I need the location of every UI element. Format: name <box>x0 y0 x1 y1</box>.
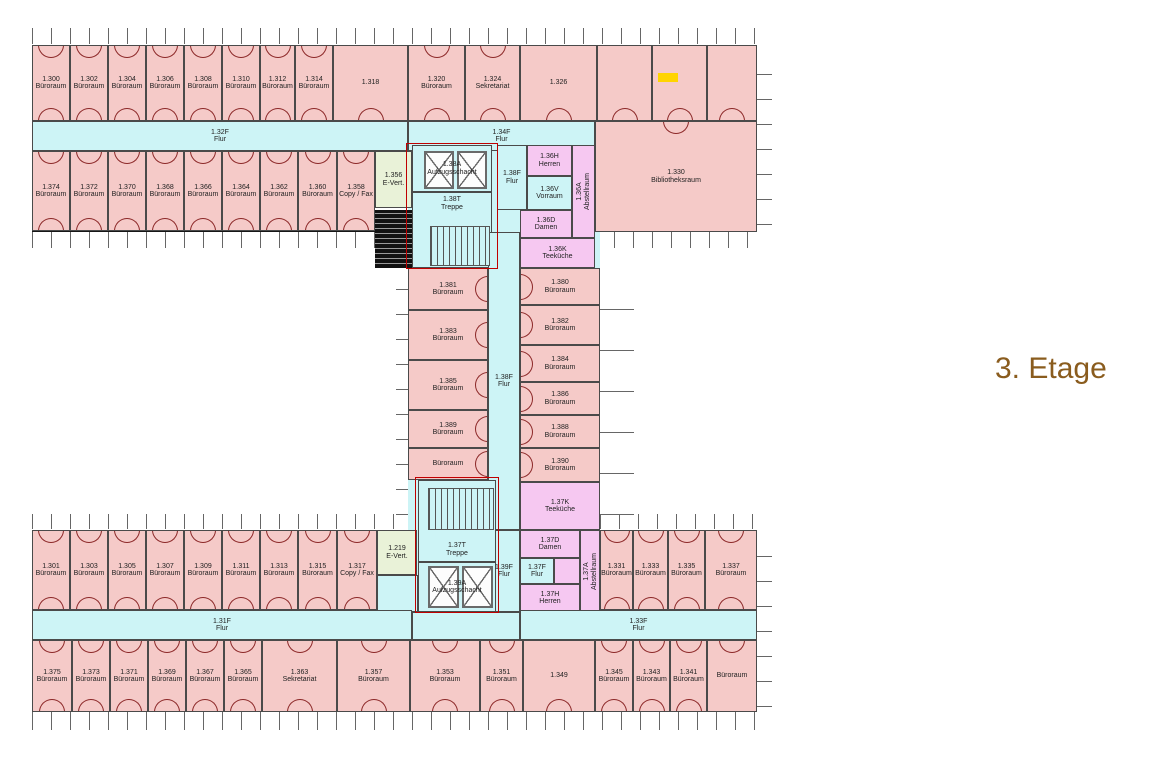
room-1.370: 1.370Büroraum <box>108 151 146 231</box>
room-1.37H: 1.37HHerren <box>520 584 580 612</box>
room-label: 1.389Büroraum <box>433 422 464 437</box>
door-swing-arc <box>114 530 140 543</box>
door-swing-arc <box>287 699 313 712</box>
room-1.330: 1.330Bibliotheksraum <box>595 121 757 232</box>
room-1.337: 1.337Büroraum <box>705 530 757 610</box>
room-label: 1.390Büroraum <box>545 458 576 473</box>
room-1.326: 1.326 <box>520 45 597 121</box>
room-label: Büroraum <box>717 672 748 680</box>
room-label: 1.358Copy / Fax <box>339 184 373 199</box>
door-swing-arc <box>480 108 506 121</box>
door-swing-arc <box>39 699 65 712</box>
room-1.349: 1.349 <box>523 640 595 712</box>
room-1.365: 1.365Büroraum <box>224 640 262 712</box>
room-label: 1.320Büroraum <box>421 76 452 91</box>
door-swing-arc <box>612 108 638 121</box>
room <box>554 558 580 584</box>
door-swing-arc <box>520 312 533 338</box>
room-label: 1.37FFlur <box>528 564 546 579</box>
room-1.357: 1.357Büroraum <box>337 640 410 712</box>
door-swing-arc <box>480 45 506 58</box>
room-label: 1.364Büroraum <box>226 184 257 199</box>
window-ticks <box>32 514 408 529</box>
room-1.331: 1.331Büroraum <box>600 530 633 610</box>
door-swing-arc <box>489 699 515 712</box>
room-1.388: 1.388Büroraum <box>520 415 600 448</box>
door-swing-arc <box>489 640 515 653</box>
room-label: 1.318 <box>362 79 380 87</box>
door-swing-arc <box>546 699 572 712</box>
room-label: 1.36KTeeküche <box>543 246 573 261</box>
room-1.366: 1.366Büroraum <box>184 151 222 231</box>
room-label: 1.345Büroraum <box>599 669 630 684</box>
room-label: 1.368Büroraum <box>150 184 181 199</box>
door-swing-arc <box>676 699 702 712</box>
door-swing-arc <box>190 108 216 121</box>
room-1.381: 1.381Büroraum <box>408 268 488 310</box>
room-label: 1.362Büroraum <box>264 184 295 199</box>
room <box>377 575 418 612</box>
door-swing-arc <box>190 218 216 231</box>
room-1.313: 1.313Büroraum <box>260 530 298 610</box>
room-label: 1.371Büroraum <box>114 669 145 684</box>
room-1.37F: 1.37FFlur <box>520 558 554 584</box>
door-swing-arc <box>719 640 745 653</box>
door-swing-arc <box>190 151 216 164</box>
room-label: Büroraum <box>433 460 464 468</box>
door-swing-arc <box>152 151 178 164</box>
room-label: 1.306Büroraum <box>150 76 181 91</box>
room-1.389: 1.389Büroraum <box>408 410 488 448</box>
room-1.368: 1.368Büroraum <box>146 151 184 231</box>
room-1.335: 1.335Büroraum <box>668 530 705 610</box>
room-label: 1.38FFlur <box>503 170 521 185</box>
room-label: 1.357Büroraum <box>358 669 389 684</box>
room-1.358: 1.358Copy / Fax <box>337 151 375 231</box>
room-label: 1.381Büroraum <box>433 282 464 297</box>
door-swing-arc <box>361 699 387 712</box>
room-label: 1.360Büroraum <box>302 184 333 199</box>
room-1.304: 1.304Büroraum <box>108 45 146 121</box>
window-ticks <box>32 232 408 248</box>
room-1.373: 1.373Büroraum <box>72 640 110 712</box>
room-label: 1.219E-Vert. <box>386 545 407 560</box>
door-swing-arc <box>676 640 702 653</box>
door-swing-arc <box>601 640 627 653</box>
room-label: 1.386Büroraum <box>545 391 576 406</box>
door-swing-arc <box>432 699 458 712</box>
door-swing-arc <box>116 699 142 712</box>
room-label: 1.375Büroraum <box>37 669 68 684</box>
door-swing-arc <box>38 108 64 121</box>
door-swing-arc <box>424 108 450 121</box>
door-swing-arc <box>520 419 533 445</box>
door-swing-arc <box>192 640 218 653</box>
room-label: 1.330Bibliotheksraum <box>651 169 701 184</box>
room-label: 1.383Büroraum <box>433 328 464 343</box>
door-swing-arc <box>152 218 178 231</box>
door-swing-arc <box>358 108 384 121</box>
room-label: 1.373Büroraum <box>76 669 107 684</box>
door-swing-arc <box>520 452 533 478</box>
room-label: 1.36DDamen <box>535 217 558 232</box>
door-swing-arc <box>114 218 140 231</box>
room-label: 1.36AAbstellraum <box>576 173 591 210</box>
room-label: 1.337Büroraum <box>716 563 747 578</box>
door-swing-arc <box>546 108 572 121</box>
room-label: 1.317Copy / Fax <box>340 563 374 578</box>
room-label: 1.37KTeeküche <box>545 499 575 514</box>
room-label: 1.366Büroraum <box>188 184 219 199</box>
door-swing-arc <box>76 597 102 610</box>
room <box>597 45 652 121</box>
fire-compartment-line <box>415 477 499 613</box>
room-label: 1.314Büroraum <box>299 76 330 91</box>
room-1.360: 1.360Büroraum <box>298 151 337 231</box>
window-ticks <box>600 514 757 529</box>
room-label: 1.385Büroraum <box>433 378 464 393</box>
door-swing-arc <box>116 640 142 653</box>
room-label: 1.300Büroraum <box>36 76 67 91</box>
room-label: 1.369Büroraum <box>152 669 183 684</box>
room-label: 1.309Büroraum <box>188 563 219 578</box>
door-swing-arc <box>604 597 630 610</box>
door-swing-arc <box>38 218 64 231</box>
room-1.308: 1.308Büroraum <box>184 45 222 121</box>
room-label: 1.333Büroraum <box>635 563 666 578</box>
room-1.374: 1.374Büroraum <box>32 151 70 231</box>
door-swing-arc <box>228 45 254 58</box>
room-1.302: 1.302Büroraum <box>70 45 108 121</box>
door-swing-arc <box>475 416 488 442</box>
door-swing-arc <box>266 151 292 164</box>
door-swing-arc <box>520 351 533 377</box>
door-swing-arc <box>719 108 745 121</box>
door-swing-arc <box>639 699 665 712</box>
door-swing-arc <box>265 108 291 121</box>
room-1.383: 1.383Büroraum <box>408 310 488 360</box>
room-1.33F: 1.33FFlur <box>520 610 757 640</box>
door-swing-arc <box>638 530 664 543</box>
room-1.386: 1.386Büroraum <box>520 382 600 415</box>
room-1.219: 1.219E-Vert. <box>377 530 417 575</box>
door-swing-arc <box>301 45 327 58</box>
room-1.38F: 1.38FFlur <box>497 145 527 210</box>
room-1.369: 1.369Büroraum <box>148 640 186 712</box>
room-1.301: 1.301Büroraum <box>32 530 70 610</box>
room <box>707 45 757 121</box>
room-1.36V: 1.36VVorraum <box>527 176 572 210</box>
room-1.37A: 1.37AAbstellraum <box>580 530 600 612</box>
door-swing-arc <box>152 530 178 543</box>
room-1.333: 1.333Büroraum <box>633 530 668 610</box>
floor-title: 3. Etage <box>995 352 1107 386</box>
room-1.36A: 1.36AAbstellraum <box>572 145 595 238</box>
room-label: 1.315Büroraum <box>302 563 333 578</box>
door-swing-arc <box>76 45 102 58</box>
door-swing-arc <box>76 108 102 121</box>
room-label: 1.374Büroraum <box>36 184 67 199</box>
window-ticks <box>32 28 757 44</box>
room-label: 1.302Büroraum <box>74 76 105 91</box>
room-label: 1.33FFlur <box>630 618 648 633</box>
room-label: 1.372Büroraum <box>74 184 105 199</box>
door-swing-arc <box>475 276 488 302</box>
door-swing-arc <box>718 597 744 610</box>
door-swing-arc <box>344 530 370 543</box>
room-1.310: 1.310Büroraum <box>222 45 260 121</box>
room-1.37K: 1.37KTeeküche <box>520 482 600 530</box>
room-1.305: 1.305Büroraum <box>108 530 146 610</box>
door-swing-arc <box>38 151 64 164</box>
door-swing-arc <box>520 274 533 300</box>
room-label: 1.304Büroraum <box>112 76 143 91</box>
room-1.343: 1.343Büroraum <box>633 640 670 712</box>
door-swing-arc <box>38 530 64 543</box>
room-1.318: 1.318 <box>333 45 408 121</box>
door-swing-arc <box>638 597 664 610</box>
door-swing-arc <box>475 372 488 398</box>
door-swing-arc <box>343 151 369 164</box>
door-swing-arc <box>152 597 178 610</box>
door-swing-arc <box>475 322 488 348</box>
room <box>412 612 520 640</box>
door-swing-arc <box>674 530 700 543</box>
room-1.36H: 1.36HHerren <box>527 145 572 176</box>
door-swing-arc <box>601 699 627 712</box>
room-label: 1.324Sekretariat <box>476 76 510 91</box>
door-swing-arc <box>78 640 104 653</box>
door-swing-arc <box>343 218 369 231</box>
room-label: 1.32FFlur <box>211 129 229 144</box>
door-swing-arc <box>266 530 292 543</box>
door-swing-arc <box>266 218 292 231</box>
door-swing-arc <box>76 530 102 543</box>
door-swing-arc <box>38 597 64 610</box>
room-label: 1.311Büroraum <box>226 563 257 578</box>
door-swing-arc <box>228 597 254 610</box>
room-1.303: 1.303Büroraum <box>70 530 108 610</box>
room-label: 1.365Büroraum <box>228 669 259 684</box>
door-swing-arc <box>301 108 327 121</box>
room-label: 1.356E-Vert. <box>383 172 404 187</box>
door-swing-arc <box>520 386 533 412</box>
door-swing-arc <box>76 151 102 164</box>
door-swing-arc <box>114 108 140 121</box>
room-1.363: 1.363Sekretariat <box>262 640 337 712</box>
door-swing-arc <box>305 530 331 543</box>
room-1.32F: 1.32FFlur <box>32 121 408 151</box>
room-label: 1.38FFlur <box>495 374 513 389</box>
room: Büroraum <box>707 640 757 712</box>
room-label: 1.301Büroraum <box>36 563 67 578</box>
door-swing-arc <box>154 640 180 653</box>
door-swing-arc <box>475 451 488 477</box>
room-1.314: 1.314Büroraum <box>295 45 333 121</box>
door-swing-arc <box>190 597 216 610</box>
room-label: 1.351Büroraum <box>486 669 517 684</box>
room-label: 1.349 <box>550 672 568 680</box>
room-1.324: 1.324Sekretariat <box>465 45 520 121</box>
room-label: 1.305Büroraum <box>112 563 143 578</box>
door-swing-arc <box>190 530 216 543</box>
room-1.371: 1.371Büroraum <box>110 640 148 712</box>
room-1.372: 1.372Büroraum <box>70 151 108 231</box>
room-1.315: 1.315Büroraum <box>298 530 337 610</box>
door-swing-arc <box>265 45 291 58</box>
door-swing-arc <box>718 530 744 543</box>
door-swing-arc <box>287 640 313 653</box>
door-swing-arc <box>305 597 331 610</box>
room-1.36D: 1.36DDamen <box>520 210 572 238</box>
door-swing-arc <box>76 218 102 231</box>
room <box>652 45 707 121</box>
fire-compartment-line <box>406 143 498 269</box>
room-label: 1.326 <box>550 79 568 87</box>
door-swing-arc <box>114 597 140 610</box>
room-label: 1.310Büroraum <box>226 76 257 91</box>
door-swing-arc <box>190 45 216 58</box>
room-1.300: 1.300Büroraum <box>32 45 70 121</box>
room-label: 1.341Büroraum <box>673 669 704 684</box>
room-label: 1.34FFlur <box>493 129 511 144</box>
room-1.390: 1.390Büroraum <box>520 448 600 482</box>
room-label: 1.382Büroraum <box>545 318 576 333</box>
room-label: 1.303Büroraum <box>74 563 105 578</box>
room-1.341: 1.341Büroraum <box>670 640 707 712</box>
room-label: 1.367Büroraum <box>190 669 221 684</box>
room-1.307: 1.307Büroraum <box>146 530 184 610</box>
door-swing-arc <box>228 108 254 121</box>
door-swing-arc <box>230 699 256 712</box>
door-swing-arc <box>114 151 140 164</box>
room-label: 1.37HHerren <box>539 591 560 606</box>
door-swing-arc <box>674 597 700 610</box>
door-swing-arc <box>639 640 665 653</box>
window-ticks <box>396 270 408 515</box>
room-1.385: 1.385Büroraum <box>408 360 488 410</box>
room-label: 1.353Büroraum <box>430 669 461 684</box>
room-1.309: 1.309Büroraum <box>184 530 222 610</box>
door-swing-arc <box>78 699 104 712</box>
room-1.345: 1.345Büroraum <box>595 640 633 712</box>
door-swing-arc <box>192 699 218 712</box>
room-label: 1.335Büroraum <box>671 563 702 578</box>
room-label: 1.384Büroraum <box>545 356 576 371</box>
highlight-marker <box>658 73 678 82</box>
door-swing-arc <box>114 45 140 58</box>
room-1.306: 1.306Büroraum <box>146 45 184 121</box>
door-swing-arc <box>604 530 630 543</box>
door-swing-arc <box>432 640 458 653</box>
door-swing-arc <box>663 121 689 134</box>
room-1.375: 1.375Büroraum <box>32 640 72 712</box>
room-label: 1.313Büroraum <box>264 563 295 578</box>
door-swing-arc <box>305 151 331 164</box>
room-label: 1.308Büroraum <box>188 76 219 91</box>
room-label: 1.388Büroraum <box>545 424 576 439</box>
door-swing-arc <box>228 530 254 543</box>
room-1.320: 1.320Büroraum <box>408 45 465 121</box>
room-label: 1.37DDamen <box>539 537 562 552</box>
room-1.36K: 1.36KTeeküche <box>520 238 595 268</box>
room-1.362: 1.362Büroraum <box>260 151 298 231</box>
window-ticks <box>600 270 634 515</box>
room-label: 1.31FFlur <box>213 618 231 633</box>
room-label: 1.37AAbstellraum <box>583 553 598 590</box>
room-label: 1.312Büroraum <box>262 76 293 91</box>
window-ticks <box>757 535 772 707</box>
room-1.353: 1.353Büroraum <box>410 640 480 712</box>
room-1.37D: 1.37DDamen <box>520 530 580 558</box>
door-swing-arc <box>154 699 180 712</box>
room-1.384: 1.384Büroraum <box>520 345 600 382</box>
room-1.364: 1.364Büroraum <box>222 151 260 231</box>
room-label: 1.331Büroraum <box>601 563 632 578</box>
room-1.351: 1.351Büroraum <box>480 640 523 712</box>
room-1.311: 1.311Büroraum <box>222 530 260 610</box>
room-label: 1.343Büroraum <box>636 669 667 684</box>
door-swing-arc <box>361 640 387 653</box>
door-swing-arc <box>152 108 178 121</box>
door-swing-arc <box>152 45 178 58</box>
room: Büroraum <box>408 448 488 480</box>
room-1.31F: 1.31FFlur <box>32 610 412 640</box>
room-1.317: 1.317Copy / Fax <box>337 530 377 610</box>
door-swing-arc <box>228 151 254 164</box>
room-1.367: 1.367Büroraum <box>186 640 224 712</box>
room-1.312: 1.312Büroraum <box>260 45 295 121</box>
door-swing-arc <box>230 640 256 653</box>
window-ticks <box>757 50 772 225</box>
room-label: 1.380Büroraum <box>545 279 576 294</box>
window-ticks <box>32 712 757 730</box>
door-swing-arc <box>266 597 292 610</box>
door-swing-arc <box>38 45 64 58</box>
door-swing-arc <box>424 45 450 58</box>
room-label: 1.36HHerren <box>539 153 560 168</box>
door-swing-arc <box>667 108 693 121</box>
room-label: 1.36VVorraum <box>536 186 562 201</box>
room-label: 1.363Sekretariat <box>283 669 317 684</box>
door-swing-arc <box>228 218 254 231</box>
room-label: 1.307Büroraum <box>150 563 181 578</box>
door-swing-arc <box>305 218 331 231</box>
room-1.380: 1.380Büroraum <box>520 268 600 305</box>
door-swing-arc <box>39 640 65 653</box>
room-label: 1.370Büroraum <box>112 184 143 199</box>
room-1.382: 1.382Büroraum <box>520 305 600 345</box>
door-swing-arc <box>344 597 370 610</box>
window-ticks <box>595 232 757 248</box>
